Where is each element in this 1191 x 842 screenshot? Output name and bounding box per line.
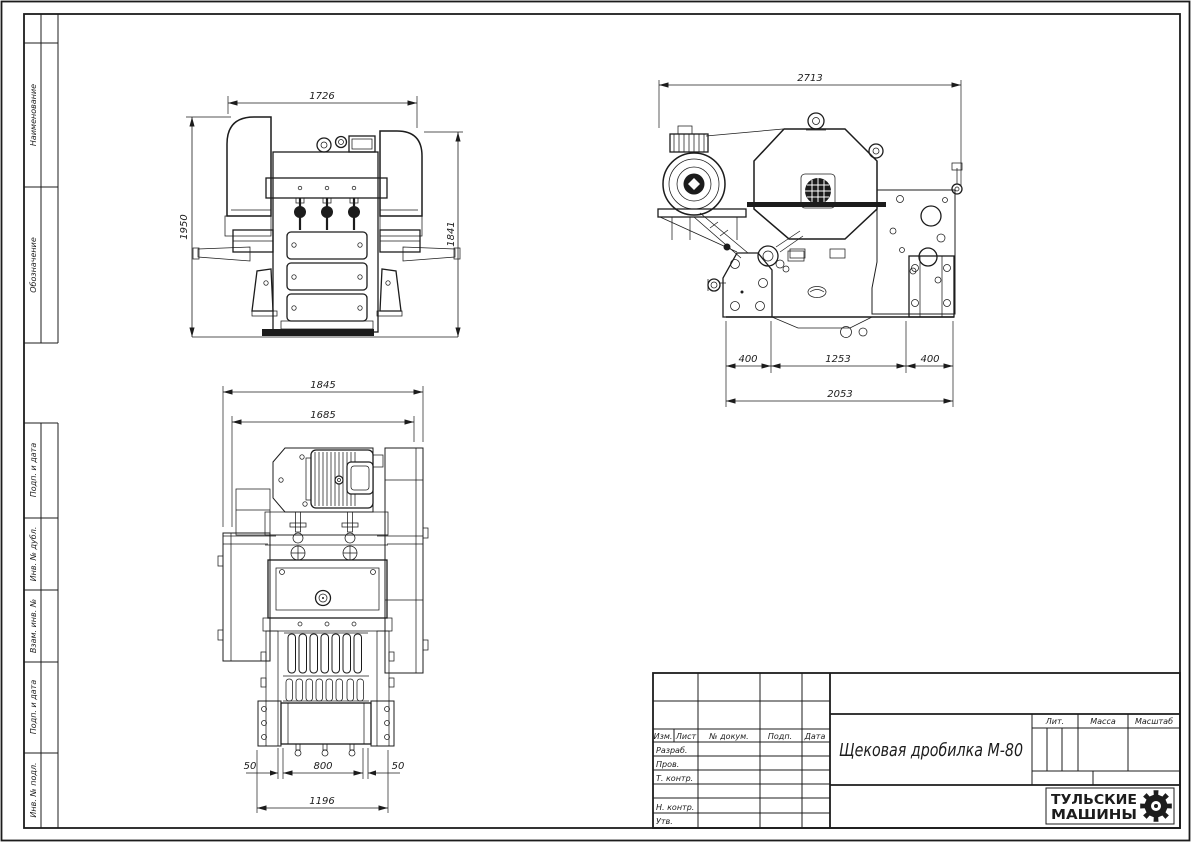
company-logo: ТУЛЬСКИЕ МАШИНЫ: [1046, 788, 1174, 824]
document-title: Щековая дробилка М-80: [839, 740, 1023, 761]
strip-label-oboznachenie: Обозначение: [29, 237, 38, 293]
drive-bar: [747, 202, 886, 207]
col-data: Дата: [804, 732, 826, 741]
row-razrab: Разраб.: [656, 746, 687, 755]
strip-label-podp-data-2: Подп. и дата: [29, 680, 38, 735]
col-podp: Подп.: [768, 732, 792, 741]
dim-text-800: 800: [313, 761, 332, 772]
dim-text-1685: 1685: [310, 410, 335, 421]
strip-label-inv-podl: Инв. № подл.: [29, 762, 38, 817]
company-name-line2: МАШИНЫ: [1051, 807, 1137, 823]
prop-massa: Масса: [1090, 717, 1116, 726]
col-list: Лист: [675, 732, 697, 741]
dim-text-1253: 1253: [825, 354, 850, 365]
dim-text-2053: 2053: [827, 389, 852, 400]
row-prov: Пров.: [656, 760, 679, 769]
dim-text-1950: 1950: [179, 214, 190, 239]
dim-text-1845: 1845: [310, 380, 335, 391]
company-name-line1: ТУЛЬСКИЕ: [1051, 792, 1137, 808]
dim-text-2713: 2713: [797, 73, 822, 84]
sheet-background: [0, 0, 1191, 842]
col-doc-num: № докум.: [708, 732, 748, 741]
dim-text-1726: 1726: [309, 91, 334, 102]
drawing-sheet: Наименование Обозначение Подп. и дата Ин…: [0, 0, 1191, 842]
drawing-canvas: Наименование Обозначение Подп. и дата Ин…: [0, 0, 1191, 842]
dim-text-1196: 1196: [309, 796, 334, 807]
strip-label-inv-dubl: Инв. № дубл.: [29, 527, 38, 582]
gear-icon: [1140, 790, 1172, 822]
col-izm: Изм.: [654, 732, 673, 741]
base-skid: [262, 329, 374, 336]
strip-label-vzam-inv: Взам. инв. №: [29, 599, 38, 653]
dim-text-1841: 1841: [446, 221, 457, 246]
row-utv: Утв.: [656, 817, 673, 826]
row-t-kontr: Т. контр.: [656, 774, 693, 783]
dim-text-400-left: 400: [738, 354, 757, 365]
row-n-kontr: Н. контр.: [656, 803, 694, 812]
dim-text-50-right: 50: [392, 761, 405, 772]
dim-text-400-right: 400: [920, 354, 939, 365]
prop-lit: Лит.: [1045, 717, 1064, 726]
strip-label-naimenovanie: Наименование: [29, 84, 38, 146]
dim-text-50-left: 50: [244, 761, 257, 772]
strip-label-podp-data-1: Подп. и дата: [29, 443, 38, 498]
prop-masshtab: Масштаб: [1135, 717, 1173, 726]
